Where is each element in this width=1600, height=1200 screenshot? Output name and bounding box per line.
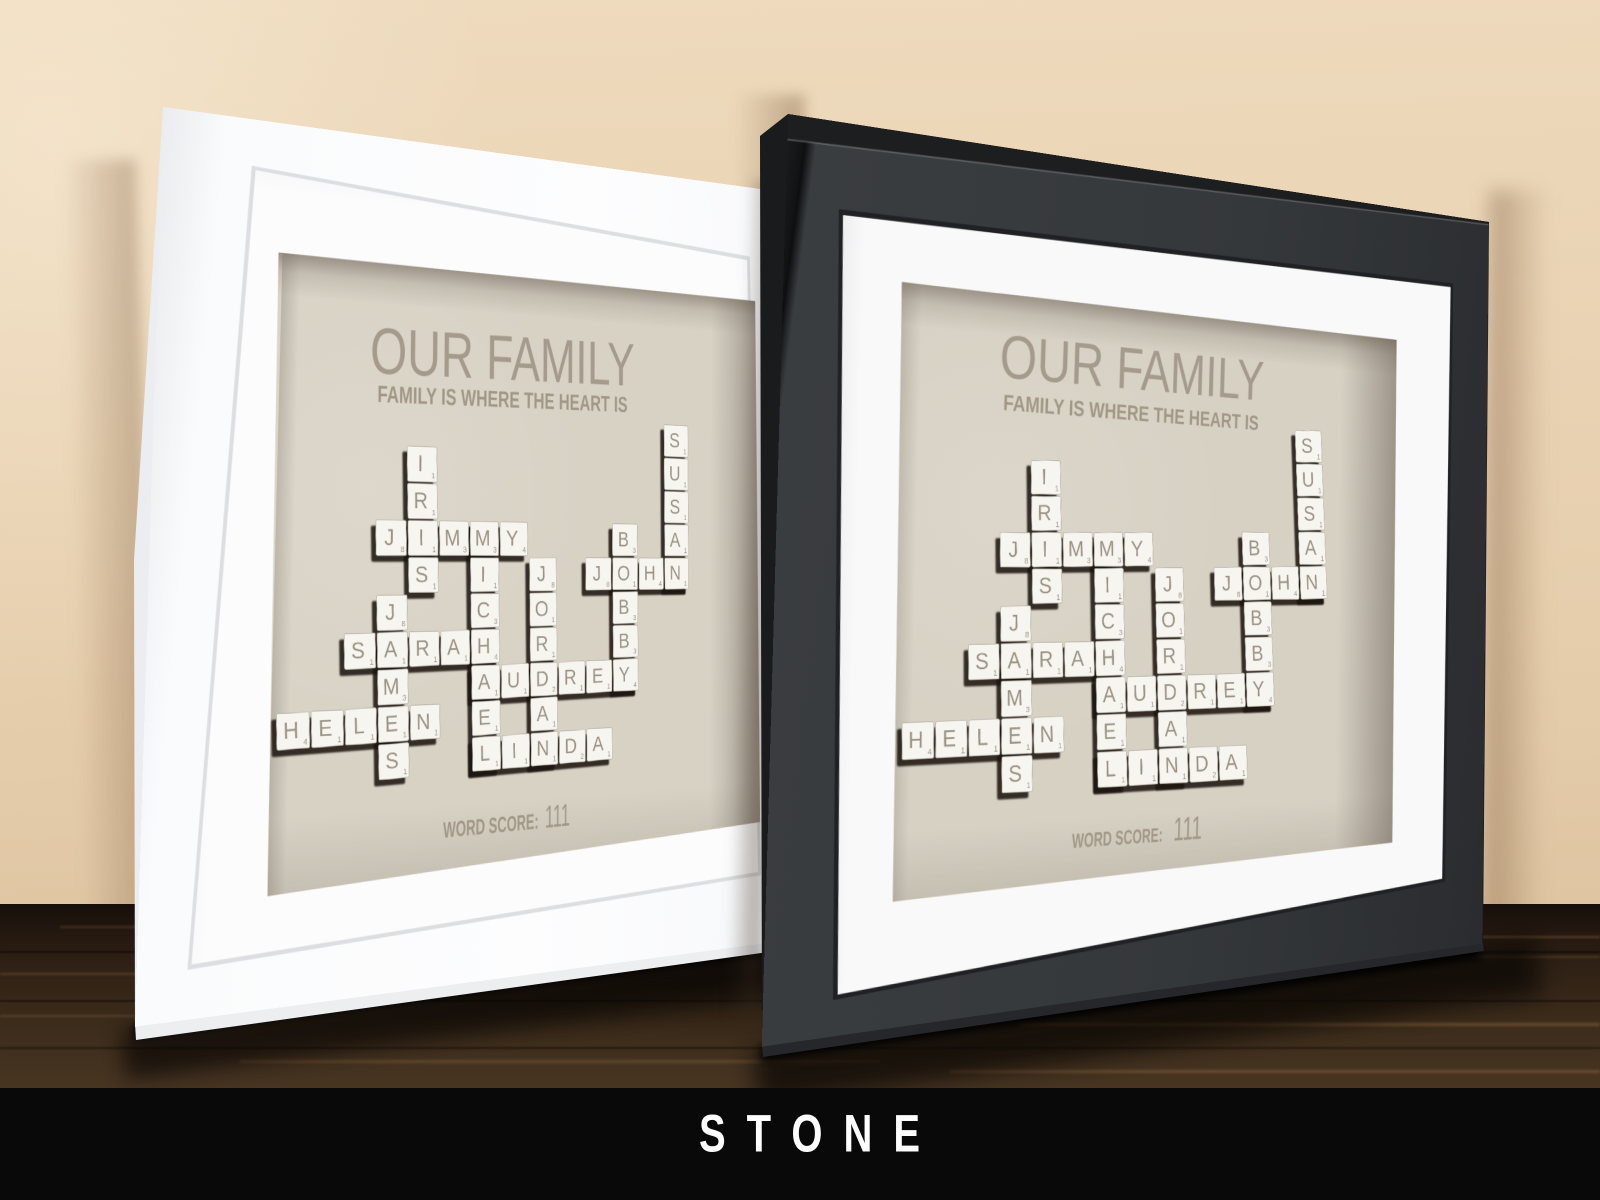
svg-text:WORD SCORE:: WORD SCORE: — [1072, 825, 1163, 853]
svg-text:111: 111 — [1173, 809, 1203, 848]
